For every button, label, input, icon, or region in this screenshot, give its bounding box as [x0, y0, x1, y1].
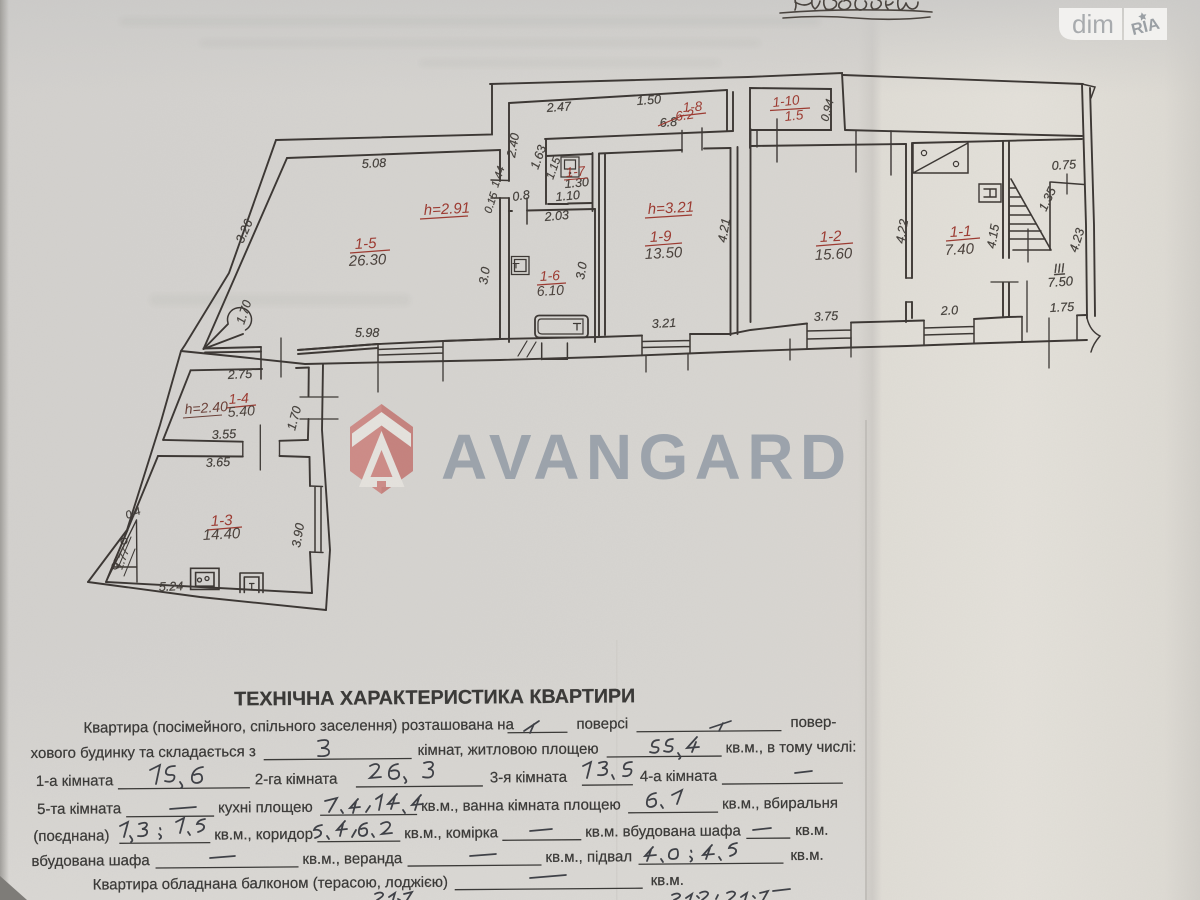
svg-text:кв.м., вбиральня: кв.м., вбиральня [722, 795, 838, 813]
svg-text:dim: dim [1072, 9, 1114, 39]
svg-text:кв.м., ванна кімната площею: кв.м., ванна кімната площею [421, 796, 621, 815]
svg-text:кімнат, житловою площею: кімнат, житловою площею [418, 741, 599, 759]
svg-text:14.40: 14.40 [202, 525, 241, 544]
svg-text:5-та кімната: 5-та кімната [37, 800, 122, 818]
svg-text:1.50: 1.50 [636, 92, 661, 108]
svg-text:хового будинку та складається: хового будинку та складається з [31, 743, 256, 762]
svg-text:5.08: 5.08 [361, 156, 386, 171]
svg-text:кв.м., веранда: кв.м., веранда [302, 850, 403, 868]
svg-text:Квартира обладнана балконом (т: Квартира обладнана балконом (терасою, ло… [93, 874, 448, 894]
svg-text:5.98: 5.98 [355, 326, 379, 340]
svg-text:ТЕХНІЧНА ХАРАКТЕРИСТИКА КВАРТИ: ТЕХНІЧНА ХАРАКТЕРИСТИКА КВАРТИРИ [234, 685, 635, 710]
svg-text:4-а кімната: 4-а кімната [640, 768, 718, 786]
svg-text:5.40: 5.40 [227, 402, 256, 420]
svg-text:1-5: 1-5 [354, 235, 377, 253]
svg-text:3.65: 3.65 [205, 455, 230, 470]
svg-text:2-га кімната: 2-га кімната [255, 771, 338, 789]
svg-text:3.55: 3.55 [211, 427, 236, 442]
svg-text:1.5: 1.5 [784, 107, 805, 124]
svg-text:кв.м., коридор: кв.м., коридор [214, 826, 313, 844]
svg-text:2.03: 2.03 [543, 208, 570, 224]
svg-text:3.75: 3.75 [813, 309, 838, 324]
svg-text:15.60: 15.60 [814, 245, 853, 264]
svg-text:вбудована шафа: вбудована шафа [31, 852, 150, 870]
svg-text:кв.м. вбудована шафа: кв.м. вбудована шафа [585, 822, 741, 840]
svg-text:(поєднана): (поєднана) [33, 827, 109, 845]
svg-text:1-7: 1-7 [565, 163, 586, 180]
svg-text:AVANGARD: AVANGARD [441, 421, 852, 493]
svg-text:3.21: 3.21 [651, 316, 676, 331]
svg-text:кв.м., комірка: кв.м., комірка [404, 824, 499, 842]
svg-text:5.24: 5.24 [159, 579, 184, 594]
svg-text:2.75: 2.75 [226, 367, 252, 382]
svg-text:h=2.40: h=2.40 [184, 398, 228, 417]
svg-text:2.47: 2.47 [545, 99, 572, 115]
svg-text:кв.м., в тому числі:: кв.м., в тому числі: [726, 739, 857, 757]
svg-text:7.40: 7.40 [944, 240, 975, 259]
svg-text:1-а кімната: 1-а кімната [36, 772, 114, 790]
svg-text:0.75: 0.75 [1051, 157, 1076, 173]
svg-text:кухні площею: кухні площею [218, 799, 313, 817]
svg-text:7.50: 7.50 [1047, 273, 1074, 290]
svg-text:Квартира (посімейного, спільно: Квартира (посімейного, спільного заселен… [83, 716, 514, 736]
svg-text:1-9: 1-9 [649, 228, 672, 246]
svg-text:26.30: 26.30 [347, 251, 387, 270]
svg-text:кв.м.: кв.м. [790, 847, 823, 864]
svg-text:3.0: 3.0 [476, 266, 493, 286]
svg-text:кв.м., підвал: кв.м., підвал [545, 848, 632, 866]
svg-text:2.0: 2.0 [939, 303, 958, 318]
svg-text:3.0: 3.0 [573, 261, 590, 281]
svg-text:поверсі: поверсі [576, 715, 628, 732]
svg-text:кв.м.: кв.м. [795, 822, 828, 839]
svg-text:6.10: 6.10 [536, 282, 564, 299]
svg-text:0.8: 0.8 [511, 188, 530, 204]
svg-text:13.50: 13.50 [644, 244, 683, 263]
svg-text:кв.м.: кв.м. [651, 872, 684, 889]
svg-text:3-я кімната: 3-я кімната [490, 769, 568, 787]
svg-text:1.75: 1.75 [1049, 300, 1074, 315]
svg-text:повер-: повер- [790, 714, 836, 731]
svg-text:1-2: 1-2 [819, 228, 842, 246]
svg-text:6.2: 6.2 [674, 106, 695, 124]
svg-text:1-1: 1-1 [949, 223, 972, 241]
